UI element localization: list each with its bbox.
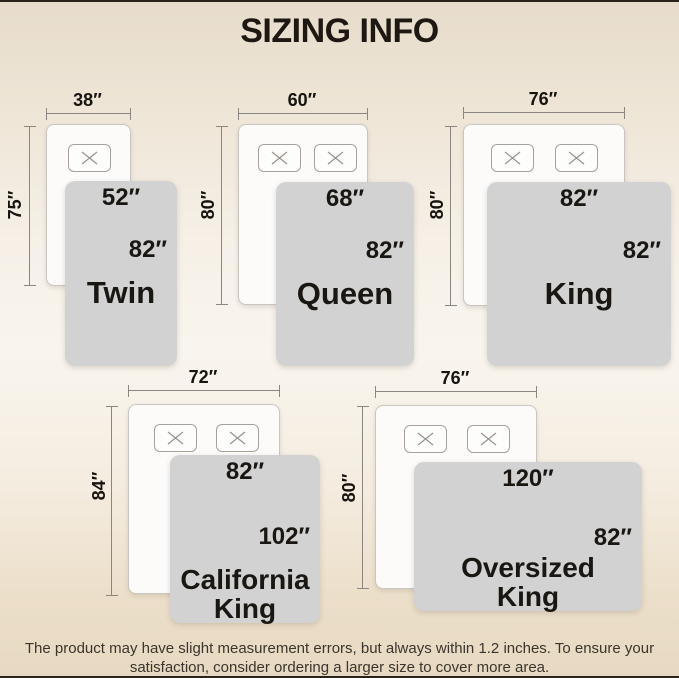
page-title: SIZING INFO <box>0 12 679 51</box>
pillow <box>68 144 111 172</box>
cover-width-label: 82″ <box>487 185 671 213</box>
height-measure-line <box>357 406 369 589</box>
bed-width-label: 60″ <box>238 91 366 109</box>
pillow-cross-icon <box>259 145 300 171</box>
blanket-overlay: 82″ 82″ King <box>487 182 671 366</box>
height-measure-line <box>24 126 36 286</box>
blanket-overlay: 52″ 82″ Twin <box>65 181 177 366</box>
bed-height-label: 75″ <box>6 181 24 229</box>
pillow <box>555 144 598 172</box>
width-measure-line <box>46 108 131 120</box>
size-name-label: Oversized King <box>414 554 642 612</box>
height-measure-line <box>106 406 118 596</box>
pillow-cross-icon <box>155 425 196 451</box>
pillow-cross-icon <box>492 145 533 171</box>
size-name-label: Queen <box>276 278 414 310</box>
pillow-cross-icon <box>315 145 356 171</box>
pillow-cross-icon <box>468 426 509 452</box>
sizing-info-infographic: SIZING INFO 38″ 75″ 52″ 82″ Twin 60″ 80″ <box>0 0 679 678</box>
bed-height-label: 80″ <box>199 181 217 229</box>
bed-width-label: 38″ <box>46 91 129 109</box>
disclaimer-line-1: The product may have slight measurement … <box>0 639 679 658</box>
blanket-overlay: 82″ 102″ California King <box>170 455 320 623</box>
height-measure-line <box>445 126 457 306</box>
pillow-cross-icon <box>405 426 446 452</box>
pillow <box>216 424 259 452</box>
cover-width-label: 52″ <box>65 184 177 212</box>
cover-height-label: 82″ <box>623 237 661 265</box>
cover-height-label: 82″ <box>366 237 404 265</box>
width-measure-line <box>238 108 368 120</box>
pillow <box>491 144 534 172</box>
bed-width-label: 72″ <box>128 368 278 386</box>
pillow <box>314 144 357 172</box>
pillow-cross-icon <box>69 145 110 171</box>
blanket-overlay: 120″ 82″ Oversized King <box>414 462 642 611</box>
cover-width-label: 82″ <box>170 458 320 486</box>
top-edge-line <box>0 0 679 2</box>
size-name-label: California King <box>170 566 320 624</box>
height-measure-line <box>216 126 228 305</box>
bed-height-label: 80″ <box>428 181 446 229</box>
size-name-label: King <box>487 278 671 310</box>
pillow <box>404 425 447 453</box>
cover-height-label: 102″ <box>258 523 310 551</box>
cover-width-label: 68″ <box>276 185 414 213</box>
width-measure-line <box>128 385 280 397</box>
pillow <box>467 425 510 453</box>
pillow-cross-icon <box>217 425 258 451</box>
pillow <box>154 424 197 452</box>
width-measure-line <box>375 386 537 398</box>
pillow <box>258 144 301 172</box>
disclaimer-text: The product may have slight measurement … <box>0 639 679 677</box>
size-name-label: Twin <box>65 277 177 309</box>
bed-width-label: 76″ <box>463 90 623 108</box>
blanket-overlay: 68″ 82″ Queen <box>276 182 414 366</box>
pillow-cross-icon <box>556 145 597 171</box>
cover-width-label: 120″ <box>414 465 642 493</box>
cover-height-label: 82″ <box>594 524 632 552</box>
bed-height-label: 80″ <box>340 464 358 512</box>
bed-width-label: 76″ <box>375 369 535 387</box>
width-measure-line <box>463 107 625 119</box>
disclaimer-line-2: satisfaction, consider ordering a larger… <box>0 658 679 677</box>
cover-height-label: 82″ <box>129 236 167 264</box>
